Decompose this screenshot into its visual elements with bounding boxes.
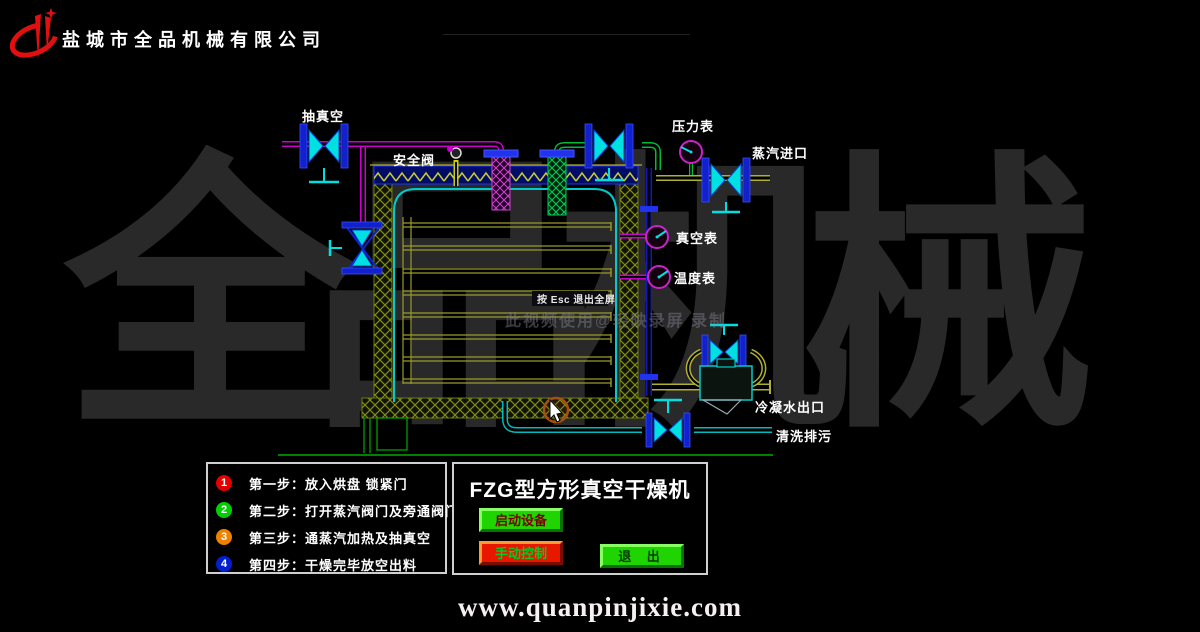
temperature-gauge-dial: [648, 266, 670, 288]
pipework: [282, 144, 772, 430]
step-label-3: 第三步：通蒸汽加热及抽真空: [249, 528, 431, 547]
machine-title: FZG型方形真空干燥机: [454, 474, 706, 504]
footer: www.quanpinjixie.com: [0, 592, 1200, 623]
drain-valve: [646, 400, 690, 447]
support-frame: [278, 418, 773, 455]
company-name: 盐城市全品机械有限公司: [62, 26, 326, 52]
steam-inlet-label: 蒸汽进口: [752, 146, 808, 161]
step-label-4: 第四步：干燥完毕放空出料: [249, 555, 417, 574]
fullscreen-hint: 按 Esc 退出全屏: [537, 293, 615, 306]
manual-control-button[interactable]: 手动控制: [479, 541, 563, 565]
control-panel: FZG型方形真空干燥机 启动设备 手动控制 退 出: [452, 462, 708, 575]
divider-line: [443, 34, 690, 35]
step-item-2: 2 第二步：打开蒸汽阀门及旁通阀门\排污: [208, 497, 445, 523]
exit-button[interactable]: 退 出: [600, 544, 684, 568]
step-badge-2: 2: [216, 502, 232, 518]
step-badge-4: 4: [216, 556, 232, 572]
website-url: www.quanpinjixie.com: [458, 592, 742, 622]
header-bar: 盐城市全品机械有限公司: [0, 0, 1200, 70]
temperature-gauge-label: 温度表: [674, 271, 716, 286]
vacuum-gauge-dial: [646, 226, 668, 248]
pressure-gauge-label: 压力表: [672, 119, 714, 134]
step-badge-3: 3: [216, 529, 232, 545]
steam-trap: [700, 359, 752, 414]
step-badge-1: 1: [216, 475, 232, 491]
steps-panel: 1 第一步：放入烘盘 锁紧门 2 第二步：打开蒸汽阀门及旁通阀门\排污 3 第三…: [206, 462, 447, 574]
vacuum-valve: [300, 124, 348, 182]
condensate-outlet-label: 冷凝水出口: [755, 400, 825, 415]
step-label-1: 第一步：放入烘盘 锁紧门: [249, 474, 408, 493]
steam-inlet-valve: [702, 158, 750, 212]
company-logo-icon: [10, 6, 60, 62]
step-item-1: 1 第一步：放入烘盘 锁紧门: [208, 470, 445, 496]
hmi-screen: { "header": { "company_name": "盐城市全品机械有限…: [0, 0, 1200, 632]
vacuum-gauge-label: 真空表: [676, 231, 718, 246]
mouse-cursor: [544, 398, 568, 422]
step-item-4: 4 第四步：干燥完毕放空出料: [208, 551, 445, 577]
flush-drain-label: 清洗排污: [776, 429, 832, 444]
recording-watermark: 此视频使用@轻映录屏 录制: [505, 311, 727, 330]
step-item-3: 3 第三步：通蒸汽加热及抽真空: [208, 524, 445, 550]
start-equipment-button[interactable]: 启动设备: [479, 508, 563, 532]
safety-valve-label: 安全阀: [393, 153, 435, 168]
pressure-gauge-dial: [680, 141, 702, 163]
vacuum-line-label: 抽真空: [302, 109, 344, 124]
